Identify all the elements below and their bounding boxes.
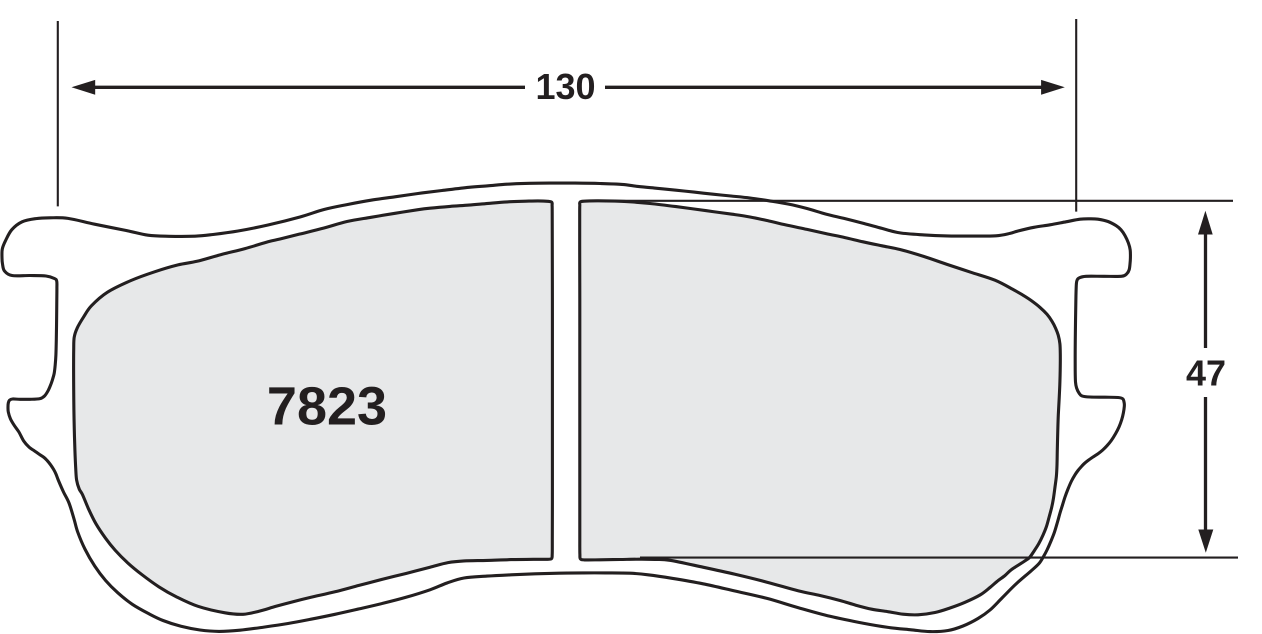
svg-text:47: 47	[1186, 353, 1226, 394]
svg-text:130: 130	[535, 66, 595, 107]
svg-text:7823: 7823	[267, 377, 387, 437]
